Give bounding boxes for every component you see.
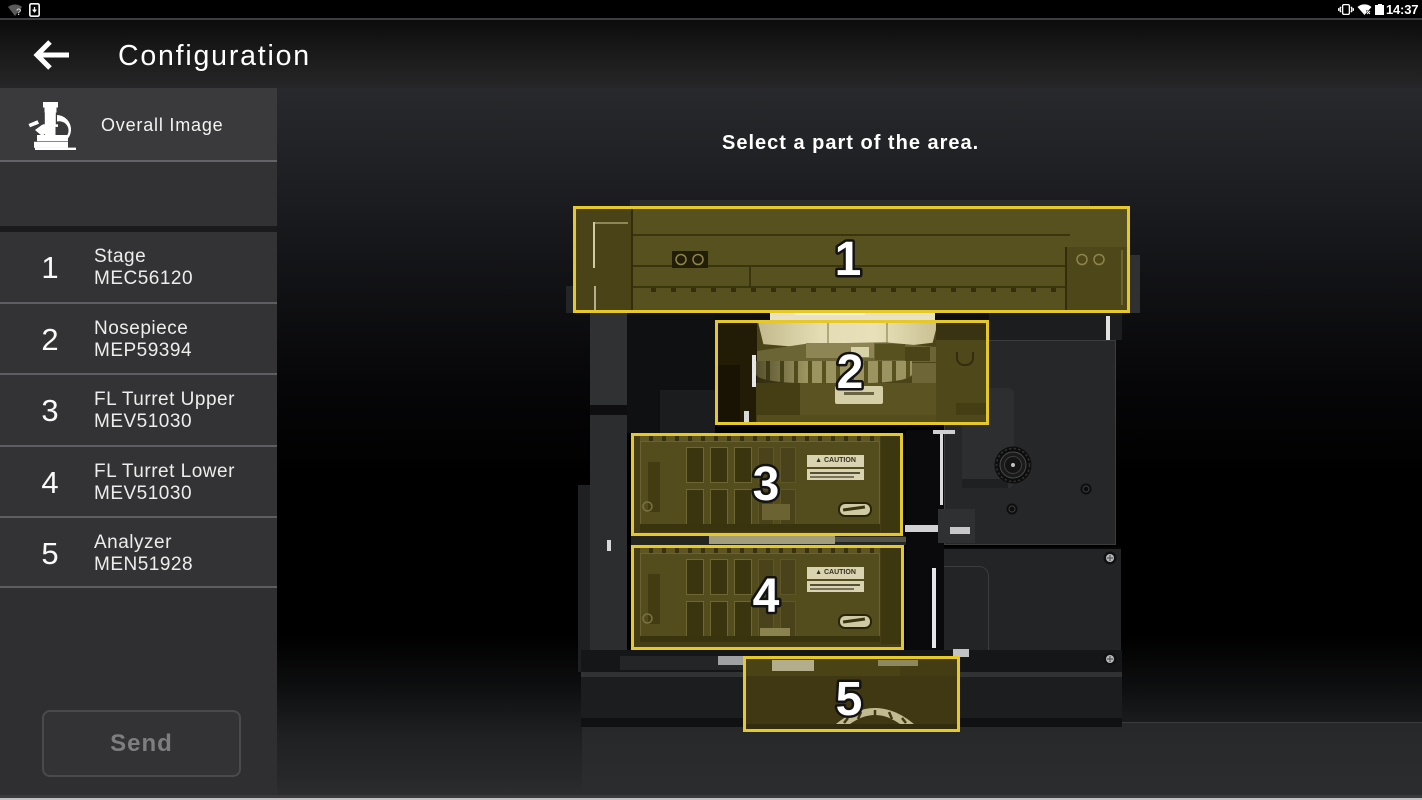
svg-text:4: 4 — [753, 570, 780, 623]
svg-text:1: 1 — [835, 233, 862, 286]
svg-text:3: 3 — [753, 458, 780, 511]
svg-text:2: 2 — [837, 346, 864, 399]
svg-text:5: 5 — [836, 673, 863, 726]
svg-text:?: ? — [16, 7, 22, 17]
